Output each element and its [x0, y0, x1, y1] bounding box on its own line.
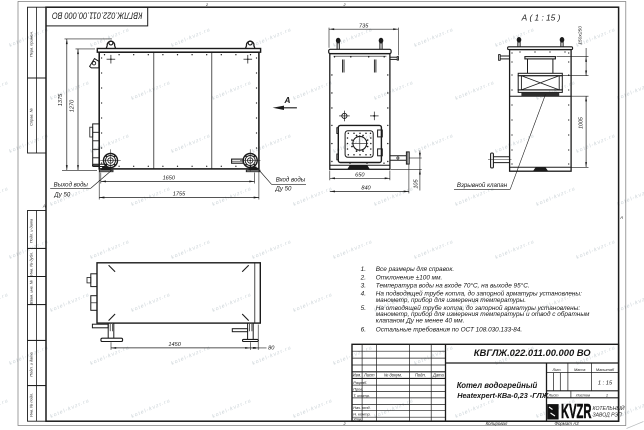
svg-text:Нач. отд.: Нач. отд.	[353, 405, 370, 410]
svg-text:Пров.: Пров.	[353, 386, 363, 391]
svg-text:Копировал: Копировал	[486, 421, 508, 426]
svg-text:Температура воды на входе 70°С: Температура воды на входе 70°С, на выход…	[376, 282, 530, 290]
svg-text:Остальные требования по ОСТ 10: Остальные требования по ОСТ 108.030.133-…	[376, 325, 522, 333]
svg-text:Ду 50: Ду 50	[53, 192, 70, 199]
svg-text:Справ. №: Справ. №	[28, 107, 33, 125]
svg-text:1650: 1650	[163, 176, 176, 182]
svg-text:№ докум.: № докум.	[384, 373, 402, 378]
svg-text:Отклонение ±100 мм.: Отклонение ±100 мм.	[376, 274, 442, 281]
svg-text:ЗАВОД РЭП: ЗАВОД РЭП	[593, 413, 623, 419]
svg-text:1450: 1450	[168, 342, 181, 348]
svg-text:150х250: 150х250	[578, 26, 584, 45]
svg-text:735: 735	[359, 23, 369, 29]
svg-text:Вход воды: Вход воды	[276, 177, 306, 184]
svg-text:Разраб.: Разраб.	[353, 380, 367, 385]
svg-text:КОТЕЛЬНЫЙ: КОТЕЛЬНЫЙ	[593, 404, 625, 412]
svg-text:80: 80	[268, 345, 275, 351]
svg-text:1270: 1270	[70, 99, 76, 112]
svg-text:Масса: Масса	[574, 367, 586, 372]
svg-text:Ду 50: Ду 50	[275, 185, 292, 192]
svg-text:6.: 6.	[361, 326, 366, 333]
svg-text:Лит.: Лит.	[551, 367, 561, 372]
svg-text:Выход воды: Выход воды	[54, 181, 89, 188]
svg-text:А ( 1 : 15 ): А ( 1 : 15 )	[521, 12, 561, 22]
svg-text:Лист: Лист	[363, 373, 375, 378]
svg-text:1: 1	[606, 392, 608, 397]
svg-text:А: А	[284, 96, 291, 105]
svg-text:Дата: Дата	[432, 373, 445, 378]
svg-text:1375: 1375	[58, 93, 64, 106]
svg-text:840: 840	[361, 186, 371, 192]
svg-text:Инв. № подл.: Инв. № подл.	[28, 393, 33, 417]
svg-text:Взрывной клапан: Взрывной клапан	[457, 182, 508, 189]
svg-text:А: А	[42, 204, 46, 209]
svg-text:KVZR: KVZR	[561, 401, 592, 423]
svg-text:Все размеры для справок.: Все размеры для справок.	[376, 265, 454, 273]
svg-text:2.: 2.	[360, 274, 366, 281]
svg-text:1 : 15: 1 : 15	[598, 381, 613, 387]
svg-text:Инв. № дубл.: Инв. № дубл.	[28, 252, 33, 276]
svg-text:Утв.: Утв.	[353, 417, 362, 422]
svg-text:Масштаб: Масштаб	[596, 367, 615, 372]
svg-text:Листов: Листов	[575, 392, 590, 397]
svg-text:Изм.: Изм.	[353, 373, 362, 378]
svg-text:Т. контр.: Т. контр.	[353, 393, 370, 398]
svg-text:Подп.: Подп.	[415, 373, 426, 378]
svg-text:Котел водогрейный: Котел водогрейный	[457, 381, 538, 390]
svg-text:4.: 4.	[361, 291, 366, 298]
svg-text:1.: 1.	[361, 266, 366, 273]
svg-text:КВГЛЖ.022.011.00.000 ВО: КВГЛЖ.022.011.00.000 ВО	[51, 10, 142, 21]
svg-text:1755: 1755	[173, 192, 186, 198]
svg-text:650: 650	[355, 172, 365, 178]
svg-text:Подп. и дата: Подп. и дата	[28, 351, 33, 376]
svg-text:А: А	[619, 215, 623, 220]
svg-text:5.: 5.	[361, 305, 366, 312]
svg-text:манометр, прибор для измерения: манометр, прибор для измерения температу…	[376, 296, 526, 304]
svg-text:1005: 1005	[579, 117, 585, 129]
svg-text:Подп. и дата: Подп. и дата	[28, 218, 33, 243]
svg-text:Перв. примен.: Перв. примен.	[28, 31, 33, 57]
svg-text:КВГЛЖ.022.011.00.000 ВО: КВГЛЖ.022.011.00.000 ВО	[474, 347, 592, 358]
svg-text:Лист: Лист	[547, 392, 559, 397]
svg-text:3.: 3.	[361, 283, 366, 290]
svg-text:клапаном Ду не менее 40 мм.: клапаном Ду не менее 40 мм.	[376, 318, 465, 325]
svg-text:105: 105	[414, 178, 420, 188]
svg-text:Heatexpert-КВа-0,23 -ГЛЖ: Heatexpert-КВа-0,23 -ГЛЖ	[457, 391, 549, 400]
svg-text:Формат А3: Формат А3	[554, 421, 579, 426]
svg-text:Взам. инв. №: Взам. инв. №	[28, 279, 33, 304]
